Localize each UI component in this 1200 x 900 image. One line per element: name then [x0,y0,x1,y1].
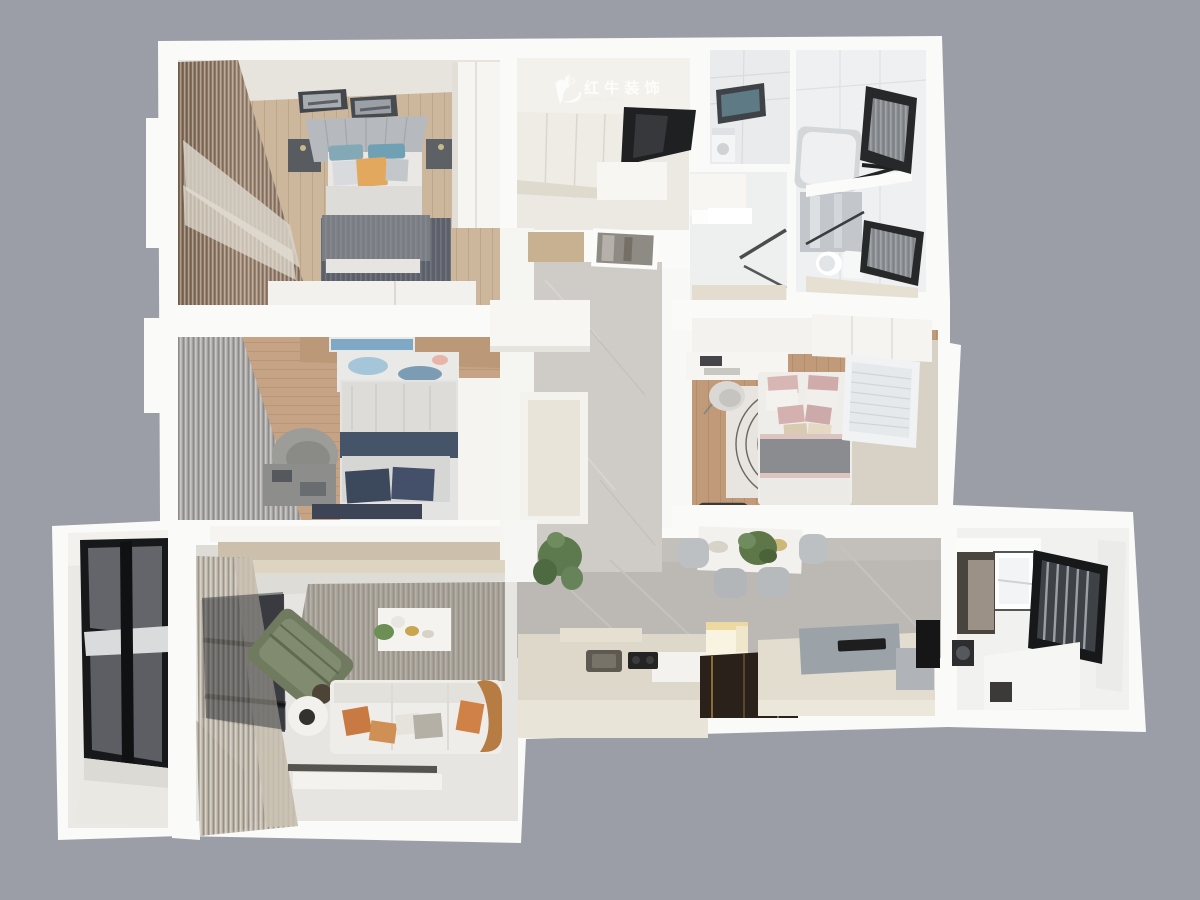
svg-text:HONG NIU DECORATION: HONG NIU DECORATION [585,97,660,102]
svg-text:红牛装饰: 红牛装饰 [584,79,665,97]
